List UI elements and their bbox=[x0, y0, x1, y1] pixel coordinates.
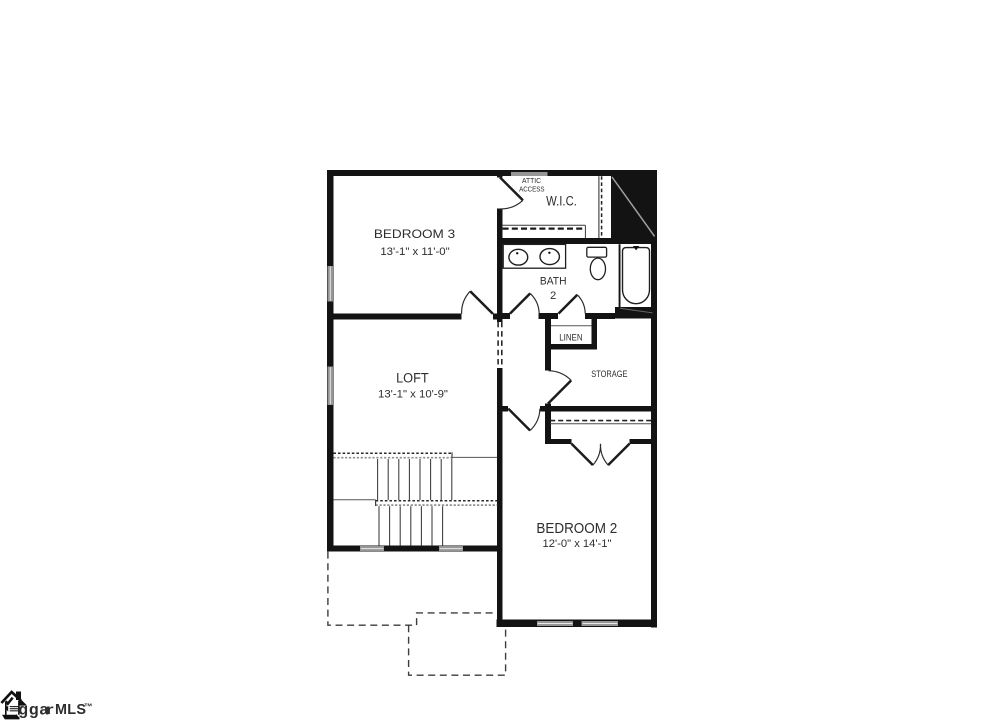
svg-text:LINEN: LINEN bbox=[559, 332, 582, 342]
svg-text:13'-1" x 10'-9": 13'-1" x 10'-9" bbox=[378, 388, 448, 400]
svg-text:ACCESS: ACCESS bbox=[519, 184, 545, 193]
svg-text:BEDROOM 2: BEDROOM 2 bbox=[536, 520, 617, 537]
svg-text:BEDROOM 3: BEDROOM 3 bbox=[374, 227, 455, 241]
svg-text:gga: gga bbox=[18, 702, 49, 719]
svg-text:r: r bbox=[46, 701, 55, 717]
svg-text:LOFT: LOFT bbox=[396, 370, 429, 385]
svg-text:13'-1" x 11'-0": 13'-1" x 11'-0" bbox=[380, 246, 449, 258]
svg-text:W.I.C.: W.I.C. bbox=[546, 193, 577, 208]
svg-text:12'-0" x 14'-1": 12'-0" x 14'-1" bbox=[543, 538, 612, 550]
svg-text:2: 2 bbox=[550, 290, 556, 302]
svg-text:MLS: MLS bbox=[55, 702, 86, 718]
svg-text:STORAGE: STORAGE bbox=[591, 369, 627, 379]
svg-text:BATH: BATH bbox=[540, 276, 567, 288]
svg-text:™: ™ bbox=[84, 702, 93, 712]
